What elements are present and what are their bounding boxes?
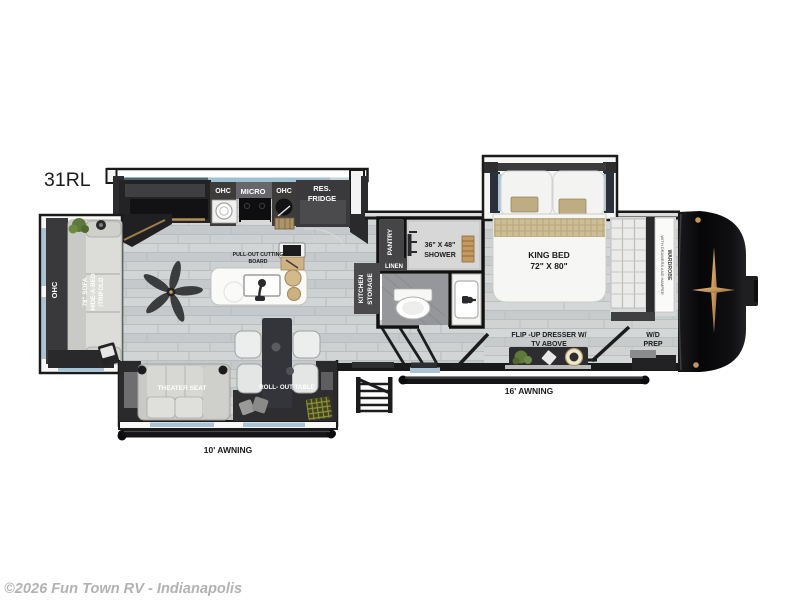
svg-text:THEATER SEAT: THEATER SEAT [158,385,207,392]
svg-text:/TRIFOLD: /TRIFOLD [98,277,105,306]
svg-text:16' AWNING: 16' AWNING [505,386,554,396]
svg-text:KING BED: KING BED [528,250,570,260]
svg-text:31RL: 31RL [44,169,91,191]
svg-text:SHOWER: SHOWER [424,252,456,259]
svg-text:LINEN: LINEN [385,264,403,270]
svg-text:PANTRY: PANTRY [387,228,394,255]
svg-text:TV ABOVE: TV ABOVE [531,341,567,348]
svg-text:OHC: OHC [50,281,59,298]
svg-text:WARDROBE: WARDROBE [666,250,672,281]
svg-text:KITCHEN: KITCHEN [358,274,365,303]
svg-text:72" X 80": 72" X 80" [530,261,567,271]
svg-text:FLIP -UP DRESSER W/: FLIP -UP DRESSER W/ [511,332,586,339]
svg-text:W/D: W/D [646,332,660,339]
svg-text:OHC: OHC [215,188,231,195]
svg-text:RES.: RES. [313,184,331,193]
svg-text:PREP: PREP [643,341,662,348]
svg-text:36" X 48": 36" X 48" [425,242,456,249]
svg-text:WITH DRAWERS AND HAMPER: WITH DRAWERS AND HAMPER [660,235,665,294]
svg-text:FRIDGE: FRIDGE [308,194,336,203]
svg-text:PULL-OUT CUTTING: PULL-OUT CUTTING [233,252,284,258]
svg-text:STORAGE: STORAGE [367,273,374,305]
svg-text:OHC: OHC [276,188,292,195]
svg-text:ROLL- OUT TABLE: ROLL- OUT TABLE [259,384,315,391]
svg-text:MICRO: MICRO [241,187,266,196]
svg-text:HIDE-A-BED: HIDE-A-BED [90,273,97,311]
svg-text:©2026 Fun Town RV - Indianapol: ©2026 Fun Town RV - Indianapolis [4,581,242,597]
svg-text:BOARD: BOARD [248,259,267,265]
svg-text:10' AWNING: 10' AWNING [204,445,253,455]
svg-text:78" SOFA: 78" SOFA [82,277,89,306]
